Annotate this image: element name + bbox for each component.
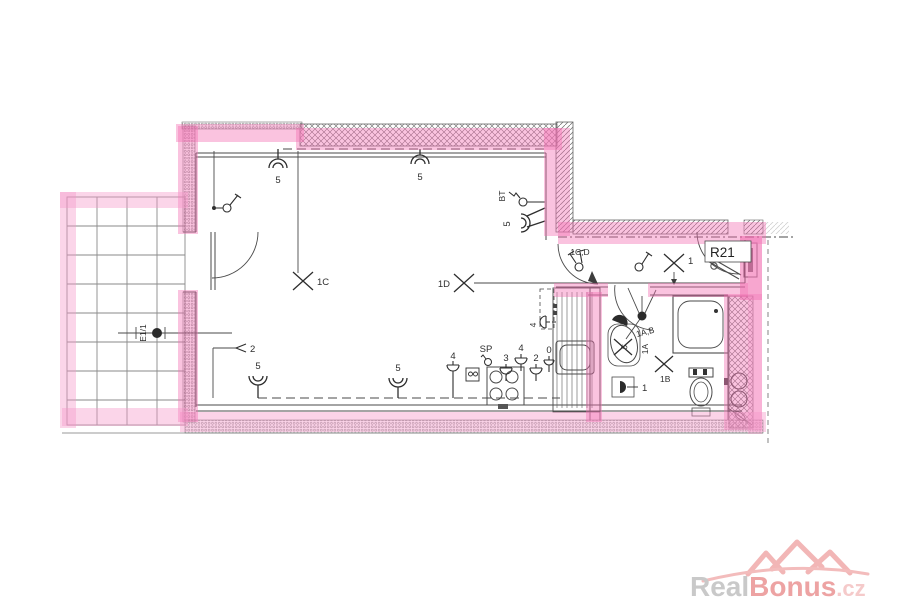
hl-left-lower bbox=[178, 290, 198, 422]
balcony-door bbox=[211, 232, 258, 290]
stove bbox=[487, 367, 524, 409]
hl-bath-top-b bbox=[648, 283, 748, 297]
terrace-tile-grid bbox=[67, 197, 185, 425]
hl-bath-left bbox=[586, 292, 602, 422]
kitchen bbox=[487, 288, 600, 412]
wall-light-top-left-icon bbox=[269, 149, 287, 168]
label-socket-0: 0 bbox=[546, 345, 551, 356]
label-5-right: 5 bbox=[502, 221, 513, 226]
hl-left-upper bbox=[178, 126, 198, 234]
label-socket-4: 4 bbox=[450, 351, 455, 362]
socket-1-bathroom-icon bbox=[620, 381, 638, 393]
hl-bath-top-a bbox=[554, 283, 608, 297]
floor-plan-drawing: R21 1C 1D 1 1A 1B 1A,B 1C,D BT 5 5 5 5 5… bbox=[0, 0, 904, 606]
label-e1-1: E1/1 bbox=[138, 324, 148, 342]
label-bt: BT bbox=[497, 191, 507, 202]
label-socket-4b: 4 bbox=[518, 343, 523, 354]
hl-terrace-left bbox=[60, 192, 76, 428]
tv-outlet-icon bbox=[236, 344, 246, 352]
watermark: RealBonus.cz bbox=[690, 542, 868, 602]
switch-bt-icon bbox=[509, 192, 545, 206]
watermark-cz: .cz bbox=[836, 576, 865, 601]
label-5-top-left: 5 bbox=[275, 175, 280, 186]
hl-step-vertical bbox=[544, 128, 570, 236]
shower-drain bbox=[714, 309, 718, 313]
switch-living-icon bbox=[212, 194, 241, 212]
direction-arrow bbox=[588, 271, 598, 284]
label-1b: 1B bbox=[660, 374, 671, 384]
socket-4-living-icon bbox=[447, 361, 459, 398]
label-socket-2: 2 bbox=[533, 353, 538, 364]
ceiling-light-1c-icon bbox=[293, 272, 313, 290]
ceiling-light-1d-icon bbox=[454, 274, 474, 292]
tv-outlet-wire bbox=[213, 348, 236, 398]
label-socket-3: 3 bbox=[503, 353, 508, 364]
label-1c: 1C bbox=[317, 277, 329, 288]
toilet bbox=[689, 368, 713, 416]
label-1cd: 1C,D bbox=[570, 247, 589, 257]
ceiling-light-1b-icon bbox=[655, 356, 673, 372]
label-5-bottom-mid: 5 bbox=[395, 363, 400, 374]
living-top-face bbox=[196, 153, 546, 157]
label-sp: SP bbox=[480, 344, 493, 355]
label-socket-4c: 4 bbox=[528, 322, 538, 327]
socket-4-wall-icon bbox=[540, 304, 557, 328]
room-label: R21 bbox=[710, 245, 735, 260]
watermark-real: Real bbox=[690, 571, 749, 602]
label-tv-2: 2 bbox=[250, 344, 255, 355]
hl-terrace-bottom bbox=[62, 408, 188, 426]
watermark-text: RealBonus.cz bbox=[690, 571, 866, 602]
wall-light-bottom-mid-icon bbox=[389, 378, 407, 398]
watermark-bonus: Bonus bbox=[749, 571, 836, 602]
wall-light-bottom-left-icon bbox=[249, 376, 267, 398]
living-bottom-face bbox=[196, 405, 742, 411]
socket-4-kitchen-icon bbox=[515, 354, 527, 371]
hl-top bbox=[296, 128, 562, 150]
socket-0-icon bbox=[544, 356, 554, 372]
socket-box-icon bbox=[466, 368, 479, 381]
socket-2-kitchen-icon bbox=[530, 364, 542, 381]
label-1: 1 bbox=[688, 256, 693, 267]
terrace-outline bbox=[67, 197, 185, 425]
pendant-light-icon bbox=[638, 312, 647, 321]
floor-plan-screenshot: R21 1C 1D 1 1A 1B 1A,B 1C,D BT 5 5 5 5 5… bbox=[0, 0, 904, 606]
wall-light-right-icon bbox=[521, 208, 545, 232]
walls bbox=[182, 122, 789, 433]
pink-highlights bbox=[60, 124, 766, 434]
hl-right-band bbox=[748, 238, 762, 434]
label-1a: 1A bbox=[640, 343, 650, 354]
label-socket-1: 1 bbox=[642, 383, 647, 394]
sp-device-icon bbox=[481, 355, 492, 366]
ceiling-light-1-icon bbox=[664, 254, 684, 272]
label-5-top-mid: 5 bbox=[417, 172, 422, 183]
hl-bottom bbox=[180, 412, 766, 432]
hall-top-wall-extension bbox=[763, 222, 789, 234]
switch-hall-icon bbox=[635, 252, 652, 271]
hl-terrace-top bbox=[60, 192, 188, 208]
shower bbox=[673, 296, 728, 353]
label-1d: 1D bbox=[438, 279, 450, 290]
kitchen-dashed-unit bbox=[540, 289, 554, 329]
terrace-light-icon bbox=[152, 328, 162, 338]
label-5-bottom-left: 5 bbox=[255, 361, 260, 372]
